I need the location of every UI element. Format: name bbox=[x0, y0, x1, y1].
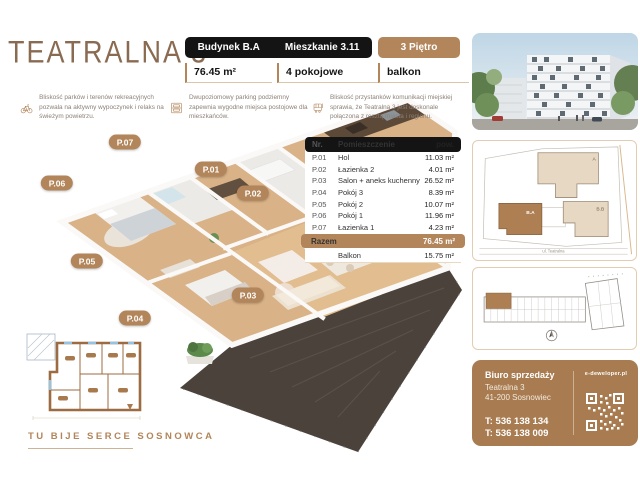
phone-number-2: T: 536 138 009 bbox=[485, 428, 548, 439]
row-name: Pokój 2 bbox=[338, 200, 424, 209]
site-plan-panel: A B.B B.A ul. Teatralna bbox=[472, 140, 637, 261]
highlight-parking: Dwupoziomowy parking podziemny zapewnia … bbox=[170, 93, 310, 123]
table-row: P.07 Łazienka 1 4.23 m² bbox=[305, 222, 461, 234]
plan-label-p05: P.05 bbox=[71, 254, 103, 269]
sales-office-card: Biuro sprzedaży Teatralna 3 41-200 Sosno… bbox=[472, 360, 638, 446]
table-row: P.06 Pokój 1 11.96 m² bbox=[305, 210, 461, 222]
table-row: P.05 Pokój 2 10.07 m² bbox=[305, 198, 461, 210]
development-logo: TEATRALNA 3 bbox=[8, 34, 208, 71]
highlight-parks-text: Bliskość parków i terenów rekreacyjnych … bbox=[39, 93, 170, 122]
row-nr: P.02 bbox=[312, 165, 338, 174]
room-table: Nr. Pomieszczenie pow. P.01 Hol 11.03 m²… bbox=[305, 137, 461, 263]
highlight-parks: Bliskość parków i terenów rekreacyjnych … bbox=[20, 93, 170, 123]
bicycle-icon bbox=[20, 93, 33, 123]
qr-code bbox=[586, 393, 624, 431]
table-row: P.01 Hol 11.03 m² bbox=[305, 152, 461, 164]
table-row: P.03 Salon + aneks kuchenny 26.52 m² bbox=[305, 175, 461, 187]
row-nr: P.05 bbox=[312, 200, 338, 209]
row-name: Pokój 1 bbox=[338, 211, 425, 220]
bus-icon bbox=[312, 93, 324, 123]
area-spec: 76.45 m² bbox=[185, 63, 272, 83]
balcony-spec: balkon bbox=[378, 63, 469, 83]
row-name: Łazienka 1 bbox=[338, 223, 429, 232]
building-photo bbox=[472, 33, 638, 130]
highlight-transit-text: Bliskość przystanków komunikacji miejski… bbox=[330, 93, 464, 122]
highlight-transit: Bliskość przystanków komunikacji miejski… bbox=[312, 93, 464, 123]
row-nr: P.03 bbox=[312, 176, 338, 185]
col-nr: Nr. bbox=[312, 140, 338, 149]
row-area: 11.03 m² bbox=[425, 153, 454, 162]
slogan-underline bbox=[28, 448, 133, 449]
table-row-balcony: Balkon 15.75 m² bbox=[305, 249, 461, 263]
apartment-label: Mieszkanie 3.11 bbox=[285, 42, 360, 53]
row-nr: P.04 bbox=[312, 188, 338, 197]
plan-label-p01: P.01 bbox=[195, 162, 227, 177]
divider bbox=[573, 371, 574, 435]
site-building-bb-label: B.B bbox=[596, 206, 604, 212]
building-render-illustration bbox=[472, 33, 638, 130]
row-area: 4.01 m² bbox=[429, 165, 454, 174]
row-nr: P.07 bbox=[312, 223, 338, 232]
total-label: Razem bbox=[311, 237, 423, 246]
plan-label-p07: P.07 bbox=[109, 135, 141, 150]
floor-plan-illustration bbox=[473, 268, 636, 349]
row-name: Salon + aneks kuchenny bbox=[338, 176, 424, 185]
table-row: P.04 Pokój 3 8.39 m² bbox=[305, 187, 461, 199]
parking-icon bbox=[170, 93, 183, 123]
row-name: Hol bbox=[338, 153, 425, 162]
apartment-2d-plan bbox=[20, 330, 155, 425]
plan-label-p06: P.06 bbox=[41, 176, 73, 191]
highlight-parking-text: Dwupoziomowy parking podziemny zapewnia … bbox=[189, 93, 310, 122]
row-nr: P.01 bbox=[312, 153, 338, 162]
table-row-total: Razem 76.45 m² bbox=[301, 234, 465, 248]
row-nr: P.06 bbox=[312, 211, 338, 220]
developer-website: e-deweloper.pl bbox=[580, 371, 632, 377]
site-street-label: ul. Teatralna bbox=[542, 249, 565, 254]
plan-label-p04: P.04 bbox=[119, 311, 151, 326]
floor-badge: 3 Piętro bbox=[378, 37, 460, 58]
row-area: 11.96 m² bbox=[425, 211, 454, 220]
balcony-deck bbox=[180, 268, 462, 452]
plan-label-p02: P.02 bbox=[237, 186, 269, 201]
floor-plan-panel bbox=[472, 267, 637, 350]
rooms-spec: 4 pokojowe bbox=[277, 63, 379, 83]
col-area: pow. bbox=[436, 140, 454, 149]
balcony-label: Balkon bbox=[338, 251, 424, 260]
plan-label-p03: P.03 bbox=[232, 288, 264, 303]
total-value: 76.45 m² bbox=[423, 237, 455, 246]
row-area: 10.07 m² bbox=[424, 200, 454, 209]
brochure-page: P.01 P.02 P.03 P.04 P.05 P.06 P.07 TEATR… bbox=[0, 0, 640, 480]
address-line2: 41-200 Sosnowiec bbox=[485, 393, 551, 402]
site-building-ba-label: B.A bbox=[526, 210, 535, 216]
planter bbox=[186, 342, 214, 364]
sales-office-title: Biuro sprzedaży bbox=[485, 370, 555, 380]
balcony-value: 15.75 m² bbox=[424, 251, 454, 260]
row-name: Łazienka 2 bbox=[338, 165, 429, 174]
city-slogan: TU BIJE SERCE SOSNOWCA bbox=[28, 431, 214, 442]
address-line1: Teatralna 3 bbox=[485, 383, 525, 392]
col-name: Pomieszczenie bbox=[338, 140, 436, 149]
phone-number-1: T: 536 138 134 bbox=[485, 416, 548, 427]
room-table-header: Nr. Pomieszczenie pow. bbox=[305, 137, 461, 152]
site-plan-illustration: A B.B B.A ul. Teatralna bbox=[473, 141, 636, 260]
building-label: Budynek B.A bbox=[198, 42, 260, 53]
row-area: 4.23 m² bbox=[429, 223, 454, 232]
table-row: P.02 Łazienka 2 4.01 m² bbox=[305, 164, 461, 176]
row-name: Pokój 3 bbox=[338, 188, 429, 197]
highlighted-apartment bbox=[486, 293, 511, 308]
row-area: 8.39 m² bbox=[429, 188, 454, 197]
building-apartment-badge: Budynek B.A Mieszkanie 3.11 bbox=[185, 37, 372, 58]
row-area: 26.52 m² bbox=[424, 176, 454, 185]
